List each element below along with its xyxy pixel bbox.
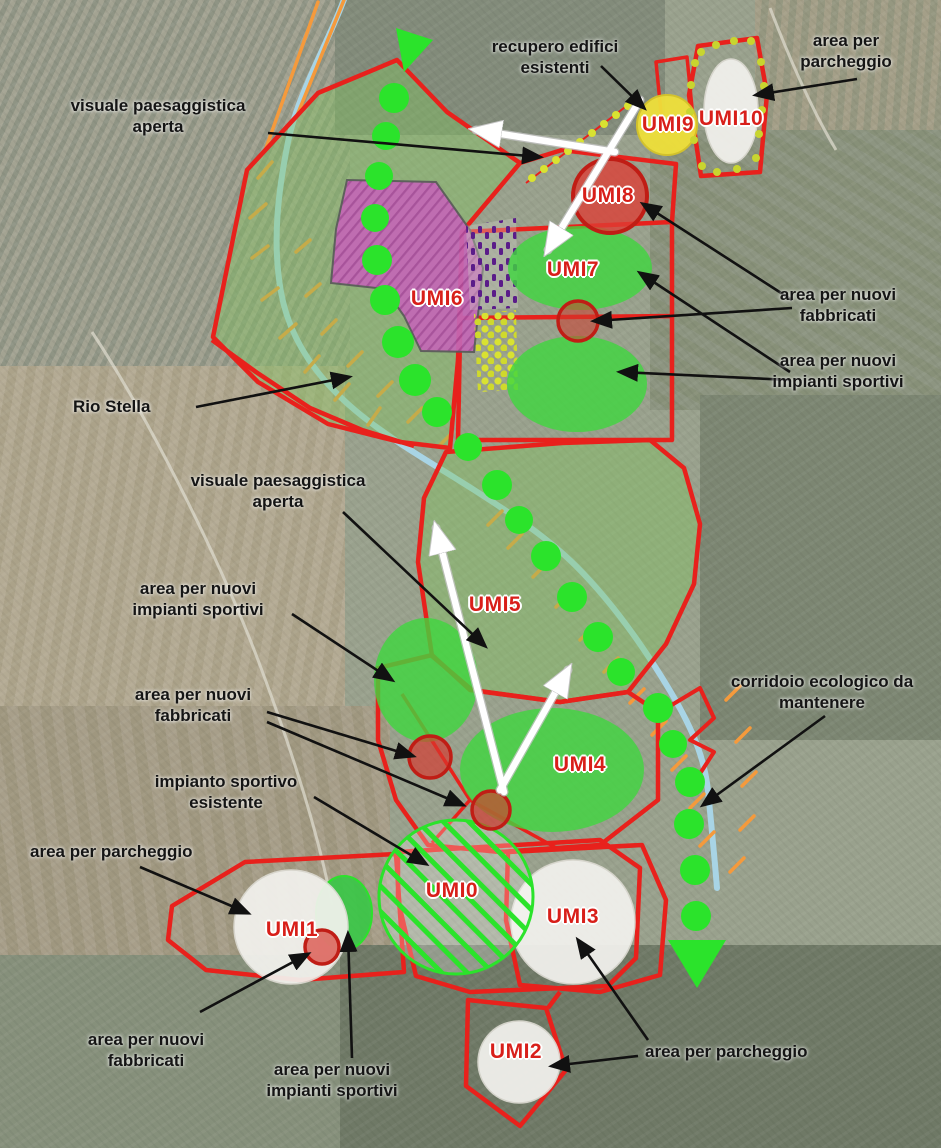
umi5-marker: UMI5 [469,593,521,617]
label-parcheggio-sud: area per parcheggio [645,1041,808,1062]
masterplan-map: visuale paesaggistica aperta recupero ed… [0,0,941,1148]
label-fabbricati-sud: area per nuovi fabbricati [66,1029,226,1072]
umi1-marker: UMI1 [266,918,318,942]
label-impianti-ovest: area per nuovi impianti sportivi [108,578,288,621]
umi7-sports-ellipse-south [507,336,647,432]
umi3-marker: UMI3 [547,905,599,929]
umi7-marker: UMI7 [547,258,599,282]
label-visuale-centro: visuale paesaggistica aperta [173,470,383,513]
label-corridoio-ecologico: corridoio ecologico da mantenere [722,671,922,714]
label-impianto-esistente: impianto sportivo esistente [136,771,316,814]
umi4-marker: UMI4 [554,753,606,777]
umi4-new-building-circle-south [472,791,510,829]
umi4-new-building-circle-west [409,736,451,778]
umi8-marker: UMI8 [582,184,634,208]
label-parcheggio-nord: area per parcheggio [786,30,906,73]
zone-umi2-connector [548,992,560,1008]
corridor-arrow-south [668,940,726,988]
label-fabbricati-ovest: area per nuovi fabbricati [113,684,273,727]
label-impianti-est: area per nuovi impianti sportivi [753,350,923,393]
label-fabbricati-est: area per nuovi fabbricati [758,284,918,327]
umi2-marker: UMI2 [490,1040,542,1064]
label-rio-stella: Rio Stella [73,396,150,417]
umi9-marker: UMI9 [642,113,694,137]
label-recupero-edifici: recupero edifici esistenti [465,36,645,79]
plan-overlay [0,0,941,1148]
umi0-marker: UMI0 [426,879,478,903]
label-impianti-sud: area per nuovi impianti sportivi [242,1059,422,1102]
umi10-marker: UMI10 [699,107,763,131]
umi7-new-building-circle [558,301,598,341]
umi6-marker: UMI6 [411,287,463,311]
label-visuale-nord: visuale paesaggistica aperta [53,95,263,138]
label-parcheggio-ovest: area per parcheggio [30,841,193,862]
